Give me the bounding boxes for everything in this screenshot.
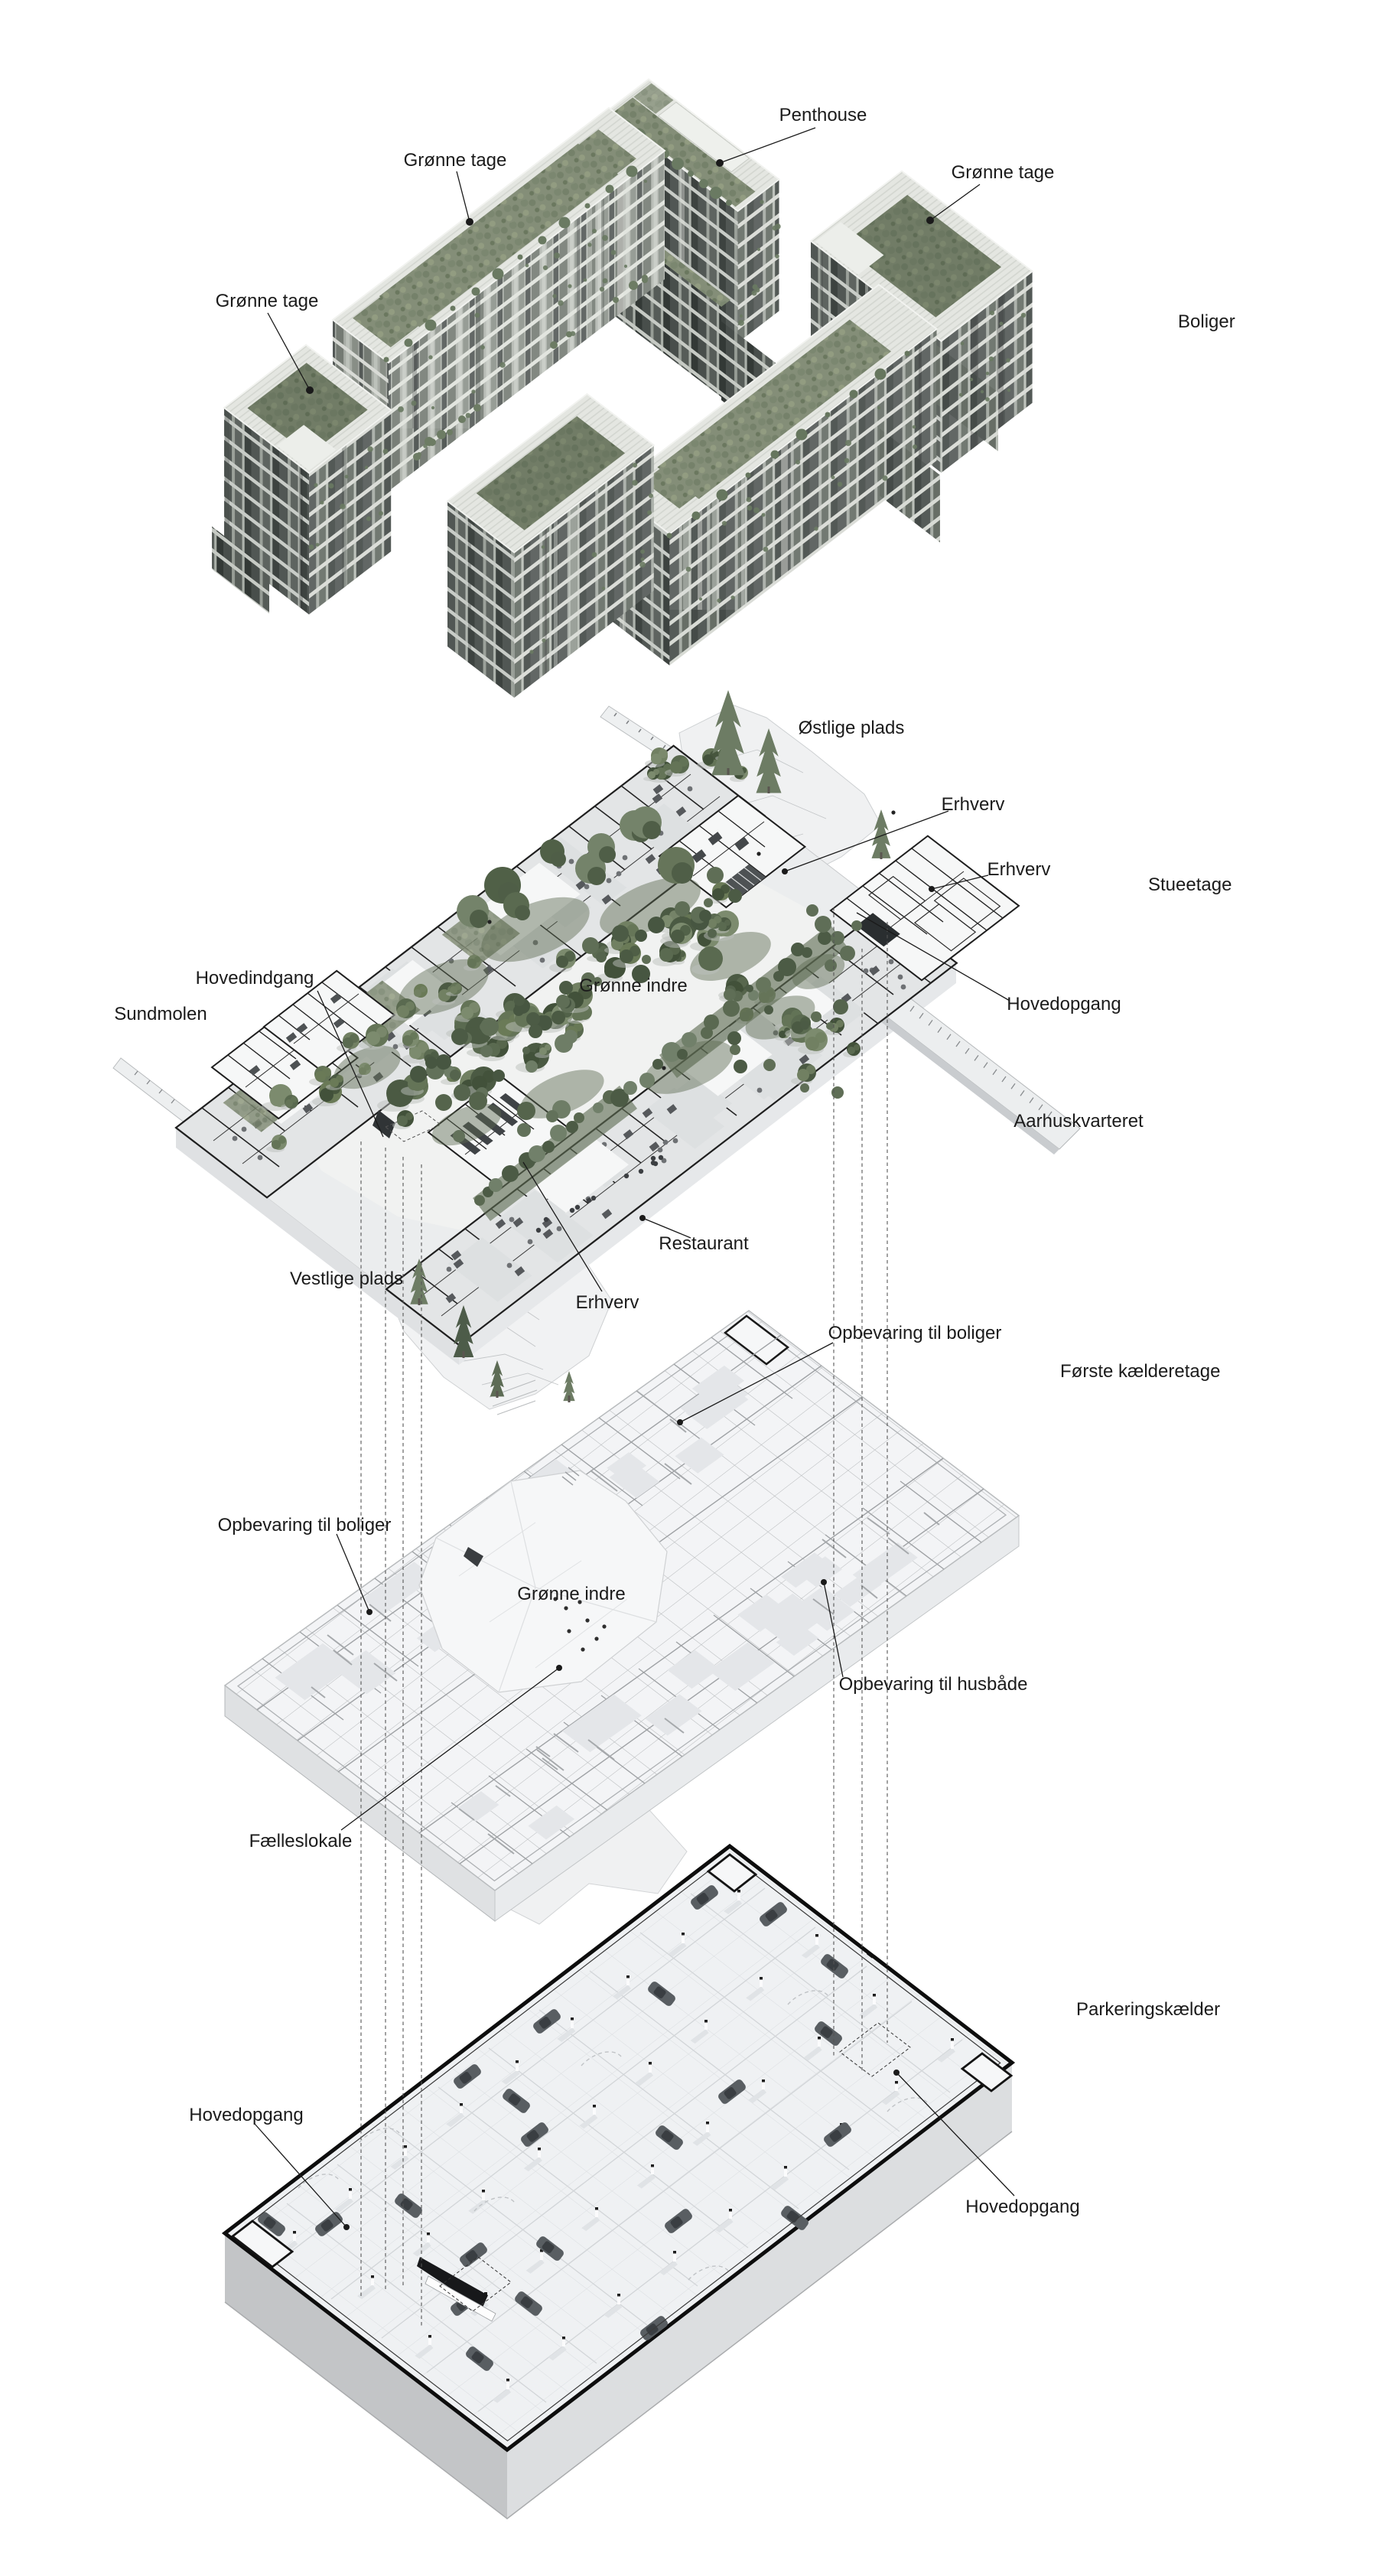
svg-text:Erhverv: Erhverv xyxy=(942,794,1005,815)
svg-text:Opbevaring til boliger: Opbevaring til boliger xyxy=(218,1515,392,1536)
svg-text:Fælleslokale: Fælleslokale xyxy=(249,1831,353,1851)
svg-text:Opbevaring til boliger: Opbevaring til boliger xyxy=(828,1323,1002,1343)
svg-text:Boliger: Boliger xyxy=(1178,311,1235,332)
svg-text:Hovedopgang: Hovedopgang xyxy=(965,2197,1079,2217)
svg-text:Hovedopgang: Hovedopgang xyxy=(1007,994,1121,1014)
svg-text:Aarhuskvarteret: Aarhuskvarteret xyxy=(1013,1111,1144,1132)
svg-text:Grønne indre: Grønne indre xyxy=(579,975,687,996)
svg-text:Parkeringskælder: Parkeringskælder xyxy=(1076,1999,1220,2020)
svg-text:Grønne tage: Grønne tage xyxy=(216,291,319,311)
svg-text:Restaurant: Restaurant xyxy=(659,1233,749,1254)
svg-text:Hovedopgang: Hovedopgang xyxy=(189,2105,303,2125)
svg-text:Grønne tage: Grønne tage xyxy=(404,150,507,171)
svg-text:Grønne tage: Grønne tage xyxy=(952,162,1055,183)
svg-text:Penthouse: Penthouse xyxy=(779,105,867,125)
svg-text:Erhverv: Erhverv xyxy=(576,1292,639,1313)
svg-text:Vestlige plads: Vestlige plads xyxy=(290,1268,403,1289)
svg-text:Østlige plads: Østlige plads xyxy=(799,718,905,738)
svg-text:Opbevaring til husbåde: Opbevaring til husbåde xyxy=(839,1674,1028,1695)
svg-text:Sundmolen: Sundmolen xyxy=(114,1004,207,1024)
svg-text:Første kælderetage: Første kælderetage xyxy=(1060,1361,1220,1382)
svg-text:Erhverv: Erhverv xyxy=(987,859,1051,880)
svg-text:Stueetage: Stueetage xyxy=(1148,874,1231,895)
svg-text:Grønne indre: Grønne indre xyxy=(517,1584,625,1604)
svg-text:Hovedindgang: Hovedindgang xyxy=(196,968,314,988)
